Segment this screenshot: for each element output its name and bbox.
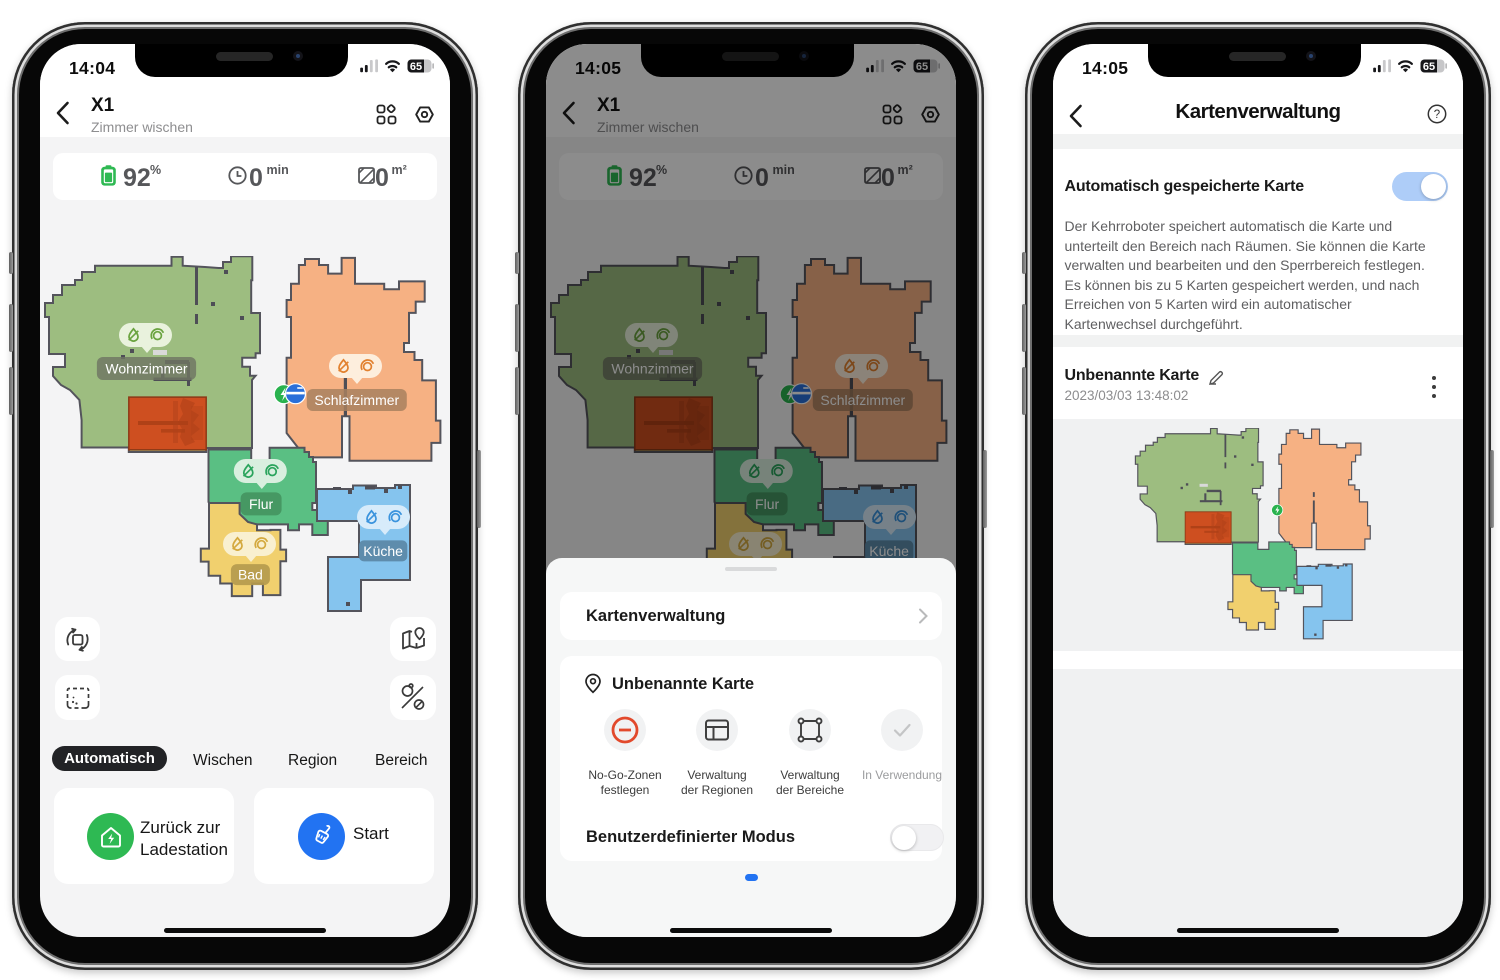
svg-text:?: ? [1434, 109, 1440, 121]
svg-text:65: 65 [409, 61, 421, 73]
svg-text:65: 65 [1422, 61, 1434, 73]
